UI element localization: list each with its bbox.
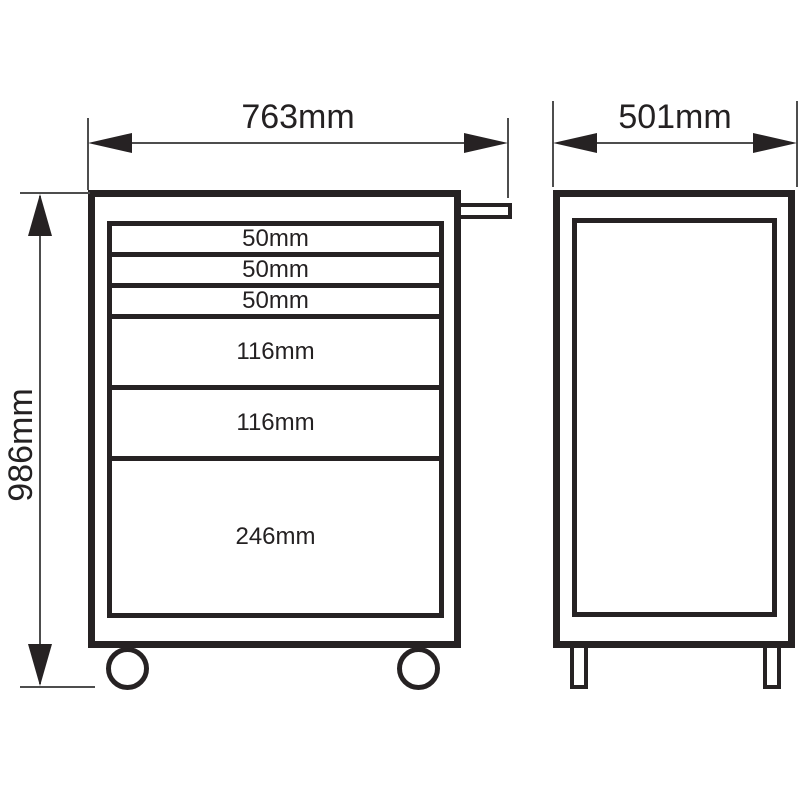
drawer-5-label: 116mm	[236, 409, 314, 437]
depth-dimension-label: 501mm	[575, 98, 775, 137]
depth-dimension-line	[595, 142, 755, 144]
drawer-3-label: 50mm	[242, 287, 309, 315]
depth-arrow-right-icon	[753, 133, 797, 153]
drawer-2: 50mm	[112, 257, 439, 288]
drawer-1: 50mm	[112, 226, 439, 257]
height-dimension-label: 986mm	[1, 370, 41, 520]
technical-drawing-canvas: 763mm 501mm 986mm 50mm 50mm 50mm 116mm 1…	[0, 0, 800, 800]
drawer-4: 116mm	[112, 319, 439, 390]
side-view-leg-left	[570, 644, 588, 689]
width-dimension-label: 763mm	[198, 98, 398, 137]
drawer-4-label: 116mm	[236, 338, 314, 366]
caster-wheel-right	[397, 647, 440, 690]
width-extension-line-left	[87, 118, 89, 190]
side-view-panel	[572, 218, 777, 617]
drawer-6-label: 246mm	[235, 523, 315, 551]
width-arrow-left-icon	[88, 133, 132, 153]
width-arrow-right-icon	[464, 133, 508, 153]
width-extension-line-right	[507, 118, 509, 198]
width-dimension-line	[128, 142, 468, 144]
depth-arrow-left-icon	[553, 133, 597, 153]
drawer-3: 50mm	[112, 288, 439, 319]
height-arrow-up-icon	[28, 194, 52, 236]
caster-wheel-left	[106, 647, 149, 690]
drawer-1-label: 50mm	[242, 225, 309, 253]
height-arrow-down-icon	[28, 644, 52, 686]
side-view-leg-right	[763, 644, 781, 689]
drawer-6: 246mm	[112, 461, 439, 613]
height-extension-line-bottom	[20, 686, 95, 688]
drawer-5: 116mm	[112, 390, 439, 461]
front-view-drawer-stack: 50mm 50mm 50mm 116mm 116mm 246mm	[107, 221, 444, 618]
drawer-2-label: 50mm	[242, 256, 309, 284]
